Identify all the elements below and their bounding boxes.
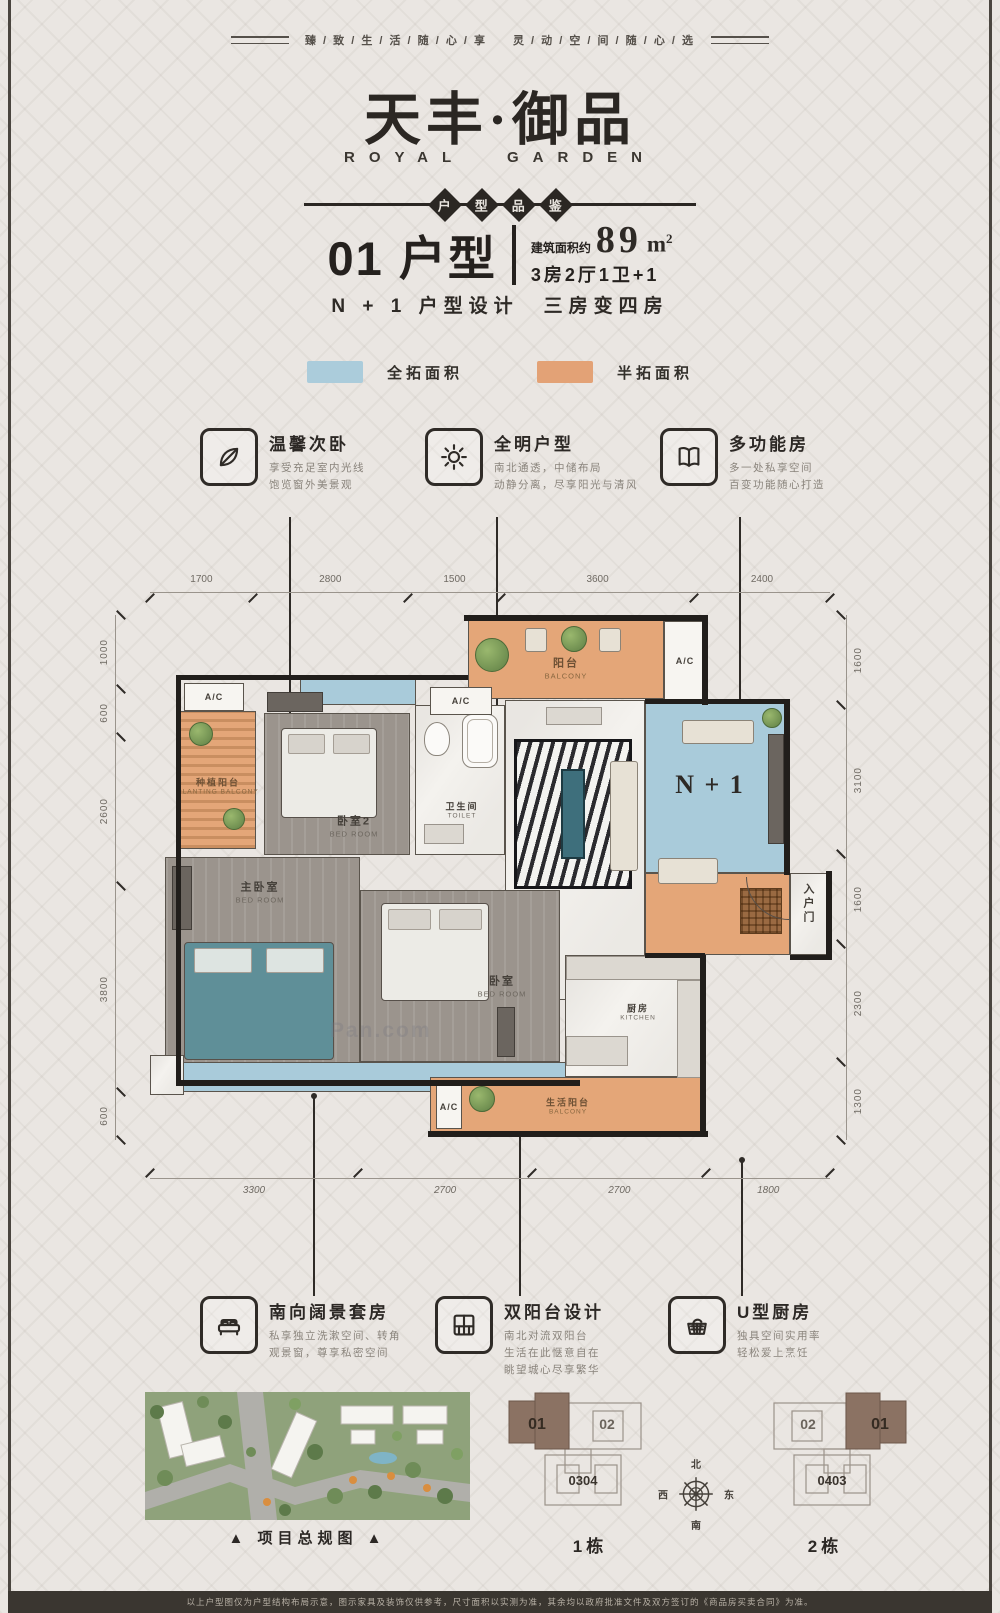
feature-bright-layout: 全明户型 南北通透，中储布局 动静分离，尽享阳光与清风 (425, 428, 650, 494)
balcony-chair (599, 628, 621, 652)
wall (702, 615, 708, 705)
legend-swatch-full (307, 361, 363, 383)
unit-subtitle: N + 1 户型设计 三房变四房 (0, 291, 1000, 318)
ribbon-divider: 户 型 品 鉴 (304, 189, 696, 221)
bed (381, 903, 489, 1001)
n1-desk (682, 720, 754, 744)
floorplan: 阳台BALCONY A/C N + 1 入户门 种植阳台PLANTING BAL… (150, 615, 830, 1140)
kitchen-counter (566, 956, 703, 980)
coffee-table (561, 769, 585, 859)
svg-text:0304: 0304 (569, 1473, 599, 1488)
leader-line (519, 1128, 521, 1296)
ac-unit-box: A/C (430, 687, 492, 715)
dimensions-top: 1700 2800 1500 3600 2400 (150, 569, 830, 593)
room-label-kitchen: 厨房KITCHEN (620, 1003, 656, 1022)
sun-icon (425, 428, 483, 486)
legend-label-half: 半拓面积 (617, 362, 693, 383)
tagline-rule-left (231, 36, 289, 44)
basket-icon (668, 1296, 726, 1354)
svg-text:0403: 0403 (818, 1473, 847, 1488)
compass-rose-icon (675, 1473, 717, 1515)
poster-page: 臻 / 致 / 生 / 活 / 随 / 心 / 享 灵 / 动 / 空 / 间 … (0, 0, 1000, 1613)
wardrobe (497, 1007, 515, 1057)
brand-name-en: ROYAL GARDEN (0, 149, 1000, 166)
legend-swatch-half (537, 361, 593, 383)
kitchen-counter (566, 1036, 628, 1066)
site-plan-caption: ▲ 项目总规图 ▲ (145, 1527, 470, 1548)
entry-door-label: 入户门 (800, 883, 816, 925)
keyplan-caption-2: 2栋 (740, 1532, 910, 1557)
wardrobe (267, 692, 323, 712)
room-label-bedroom: 卧室BED ROOM (478, 975, 527, 998)
brand-name-cn: 天丰·御品 (0, 74, 1000, 156)
ribbon-diamond: 型 (465, 188, 499, 222)
keyplan-building-2: 01 02 0403 (740, 1385, 910, 1525)
balcony-chair (525, 628, 547, 652)
keyplan-building-1: 01 02 0304 (505, 1385, 675, 1525)
watermark: Pan.com (330, 1019, 432, 1043)
ribbon-diamond: 户 (428, 188, 462, 222)
wall (784, 699, 790, 875)
site-plan-image (145, 1392, 470, 1520)
area-value: 89 (596, 223, 642, 257)
room-label-balcony: 阳台BALCONY (545, 657, 588, 680)
sink-counter (424, 824, 464, 844)
balcony-table (561, 626, 587, 652)
ac-unit-box: A/C (436, 1085, 462, 1129)
dimensions-bottom: 3300 2700 2700 1800 (150, 1178, 830, 1202)
disclaimer-bar: 以上户型图仅为户型结构布局示意，图示家具及装饰仅供参考，尺寸面积以实测为准，其余… (8, 1591, 992, 1613)
bathtub (462, 714, 498, 768)
feature-multifunction-room: 多功能房 多一处私享空间 百变功能随心打造 (660, 428, 885, 494)
svg-text:01: 01 (528, 1416, 546, 1433)
tv-cabinet (546, 707, 602, 725)
ribbon-diamond: 品 (502, 188, 536, 222)
master-bed (184, 942, 334, 1060)
wall (464, 615, 708, 621)
svg-text:02: 02 (599, 1416, 615, 1432)
wardrobe (172, 866, 192, 930)
ac-unit-box: A/C (664, 621, 706, 701)
svg-text:02: 02 (800, 1416, 816, 1432)
area-legend: 全拓面积 半拓面积 (0, 361, 1000, 383)
wall (790, 955, 832, 960)
plant-icon (189, 722, 213, 746)
plant-icon (762, 708, 782, 728)
feature-double-balcony: 双阳台设计 南北对流双阳台 生活在此惬意自在 眺望城心尽享繁华 (435, 1296, 660, 1378)
toilet-fixture (424, 722, 450, 756)
bed-icon (200, 1296, 258, 1354)
room-label-toilet: 卫生间TOILET (445, 801, 478, 820)
wall (428, 1131, 708, 1137)
tagline-text: 臻 / 致 / 生 / 活 / 随 / 心 / 享 灵 / 动 / 空 / 间 … (305, 32, 695, 48)
tagline-rule-right (711, 36, 769, 44)
room-spec: 3房2厅1卫+1 (531, 261, 673, 287)
wall (645, 953, 705, 958)
wall (176, 675, 468, 680)
room-label-n1: N + 1 (675, 770, 745, 800)
svg-text:01: 01 (871, 1416, 889, 1433)
dimensions-right: 1600 3100 1600 2300 1300 (846, 615, 869, 1140)
room-label-planting-balcony: 种植阳台PLANTING BALCONY (177, 777, 258, 796)
keyplan-caption-1: 1栋 (505, 1532, 675, 1557)
console-table (658, 858, 718, 884)
plant-icon (475, 638, 509, 672)
bed (281, 728, 377, 818)
unit-divider (512, 225, 516, 285)
balcony-icon (435, 1296, 493, 1354)
room-label-life-balcony: 生活阳台BALCONY (546, 1097, 590, 1116)
room-toilet (415, 705, 505, 855)
unit-number: 01 户型 (327, 220, 496, 289)
sofa (610, 761, 638, 871)
tagline: 臻 / 致 / 生 / 活 / 随 / 心 / 享 灵 / 动 / 空 / 间 … (0, 32, 1000, 48)
room-label-master: 主卧室BED ROOM (236, 881, 285, 904)
compass: 北 南 西 东 (660, 1458, 732, 1530)
book-icon (660, 428, 718, 486)
plant-icon (223, 808, 245, 830)
unit-title-block: 01 户型 建筑面积约 89 m2 3房2厅1卫+1 (0, 220, 1000, 289)
wall (176, 675, 181, 1085)
wall (700, 955, 706, 1137)
feature-cozy-bedroom: 温馨次卧 享受充足室内光线 饱览窗外美景观 (200, 428, 425, 494)
disclaimer-text: 以上户型图仅为户型结构布局示意，图示家具及装饰仅供参考，尺寸面积以实测为准，其余… (186, 1596, 813, 1608)
wall (645, 699, 790, 704)
legend-label-full: 全拓面积 (387, 362, 463, 383)
feature-south-suite: 南向阔景套房 私享独立洗漱空间、转角 观景窗，尊享私密空间 (200, 1296, 425, 1362)
plant-icon (469, 1086, 495, 1112)
wall (826, 871, 832, 959)
wall (176, 1080, 580, 1086)
feature-u-kitchen: U型厨房 独具空间实用率 轻松爱上烹饪 (668, 1296, 893, 1362)
ac-unit-box: A/C (184, 683, 244, 711)
n1-wardrobe (768, 734, 784, 844)
area-line: 建筑面积约 89 m2 (531, 223, 673, 258)
leaf-icon (200, 428, 258, 486)
room-label-bedroom2: 卧室2BED ROOM (330, 815, 379, 838)
dimensions-left: 1000 600 2600 3800 600 (93, 615, 116, 1140)
ribbon-diamond: 鉴 (539, 188, 573, 222)
